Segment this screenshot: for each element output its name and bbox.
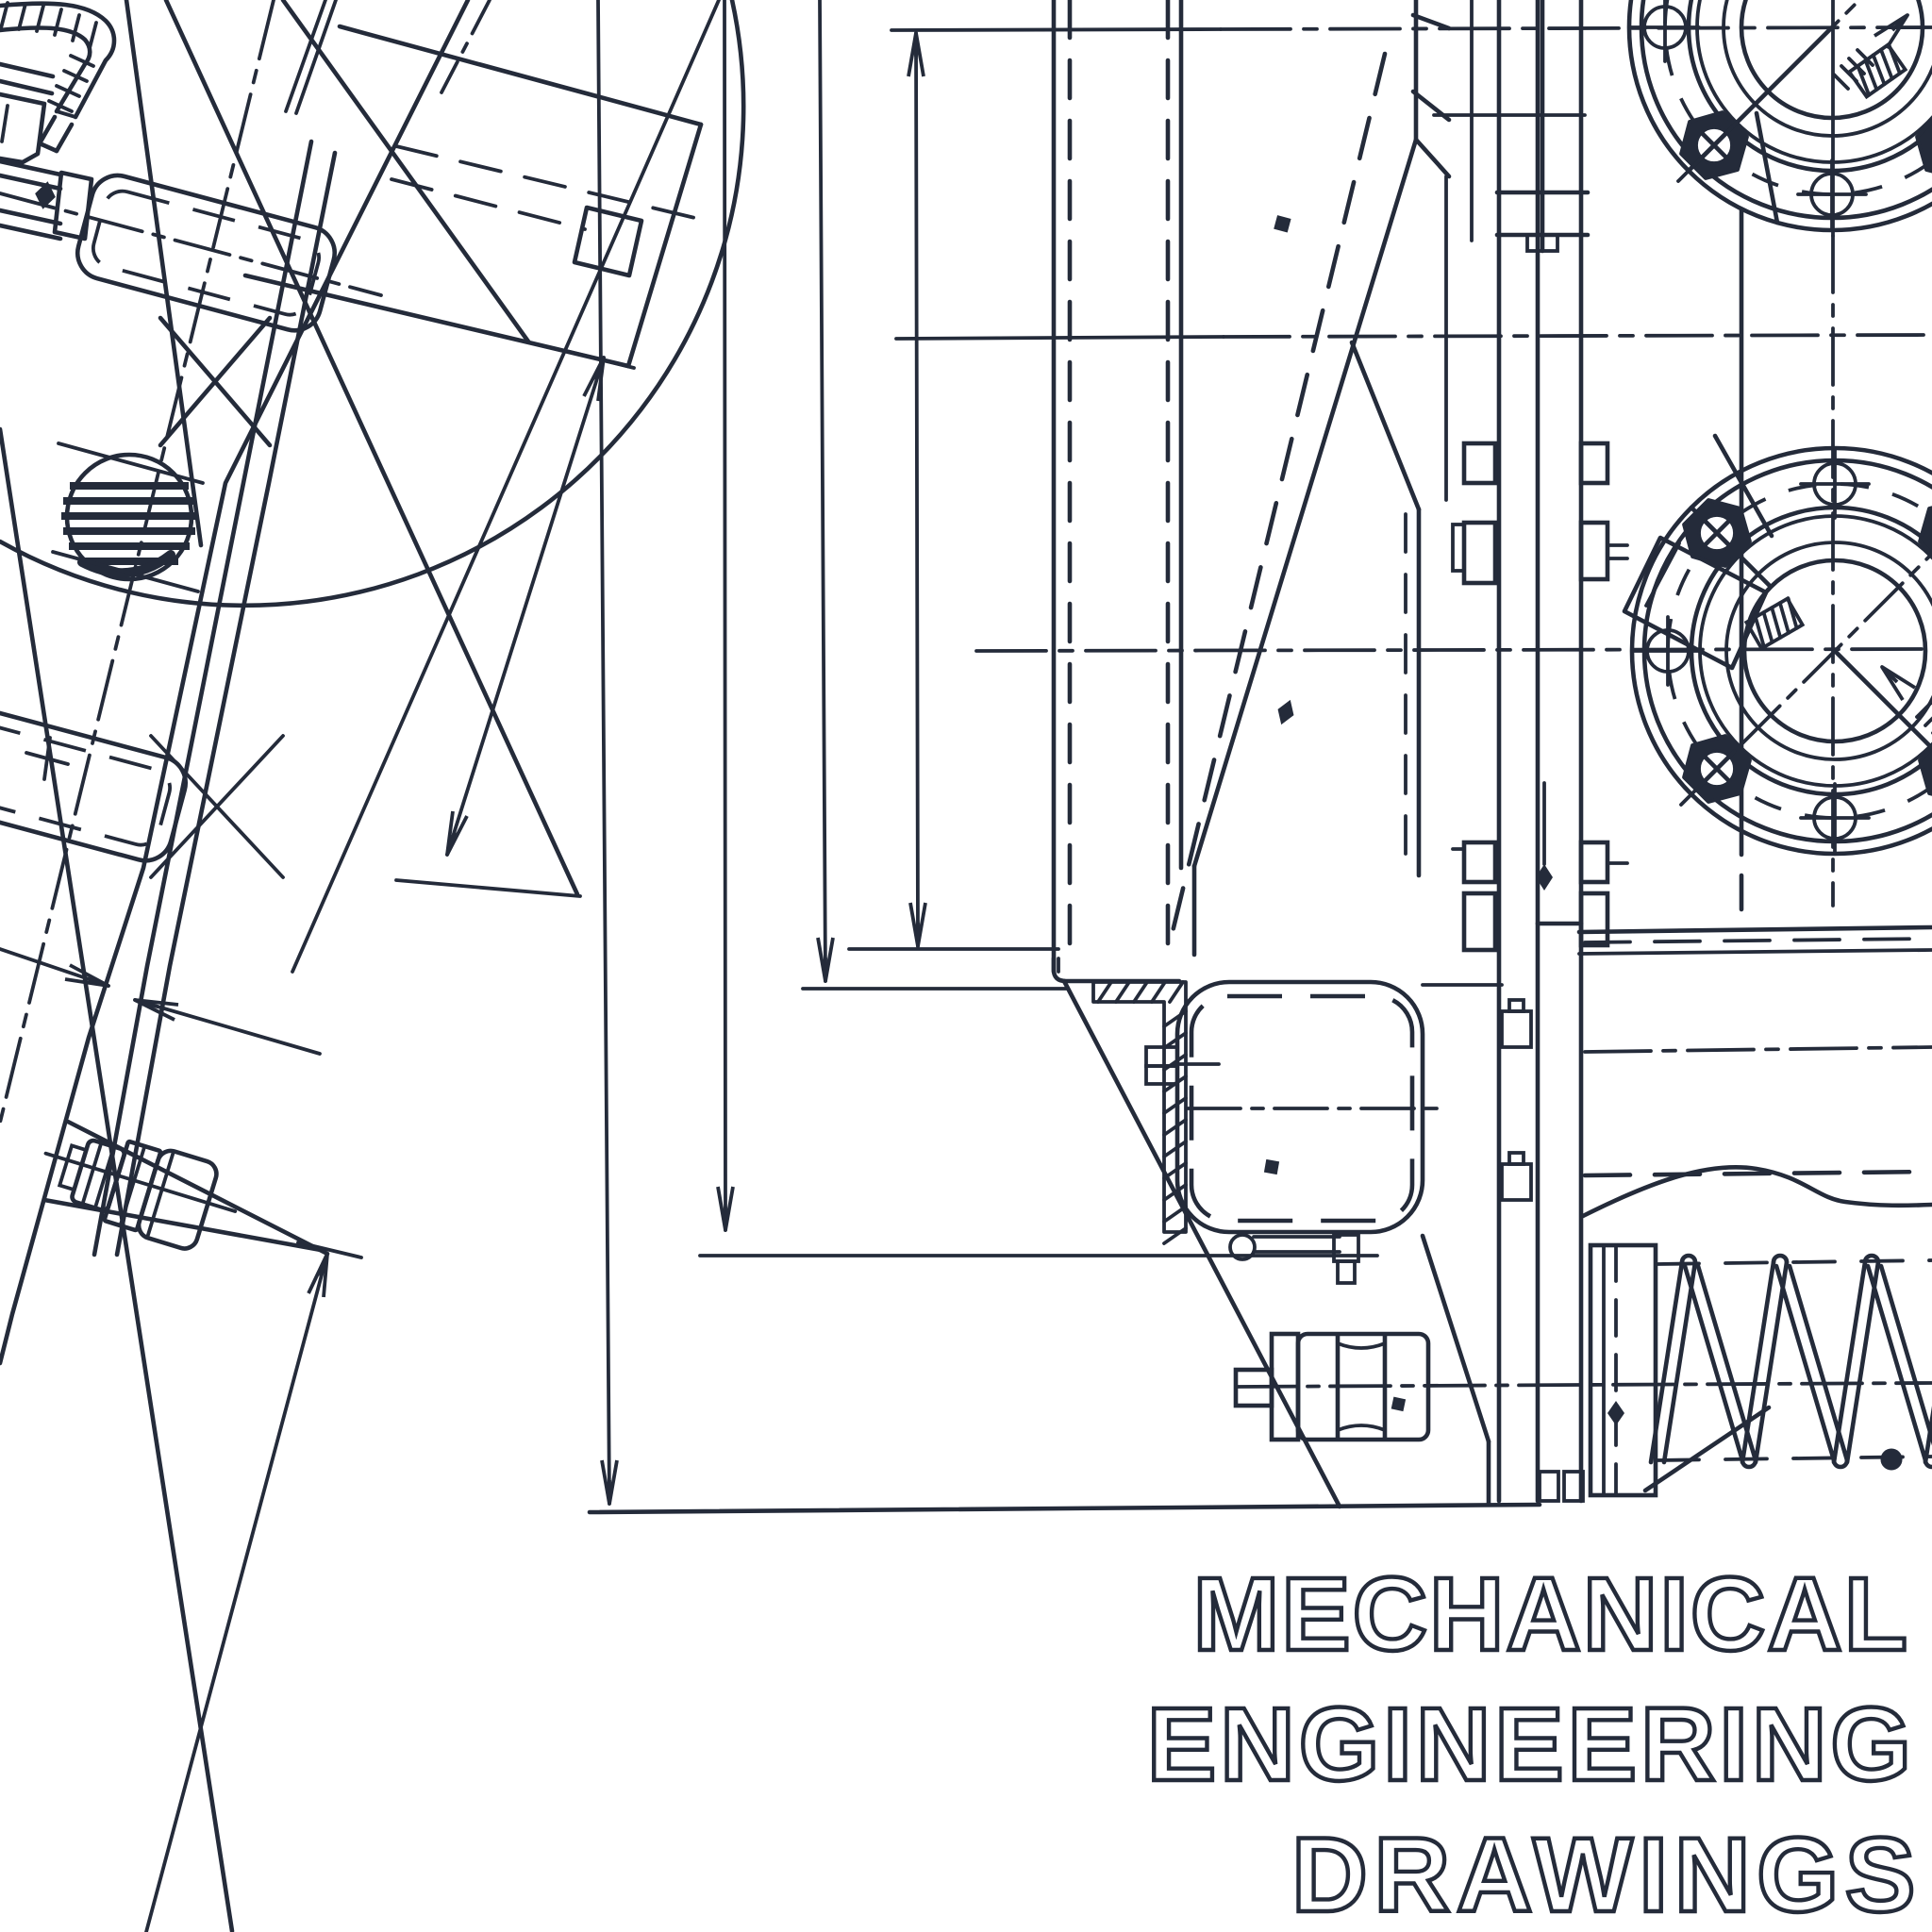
svg-text:DRAWINGS: DRAWINGS [1291,1816,1922,1932]
svg-text:MECHANICAL: MECHANICAL [1193,1557,1909,1673]
svg-text:ENGINEERING: ENGINEERING [1147,1687,1915,1803]
